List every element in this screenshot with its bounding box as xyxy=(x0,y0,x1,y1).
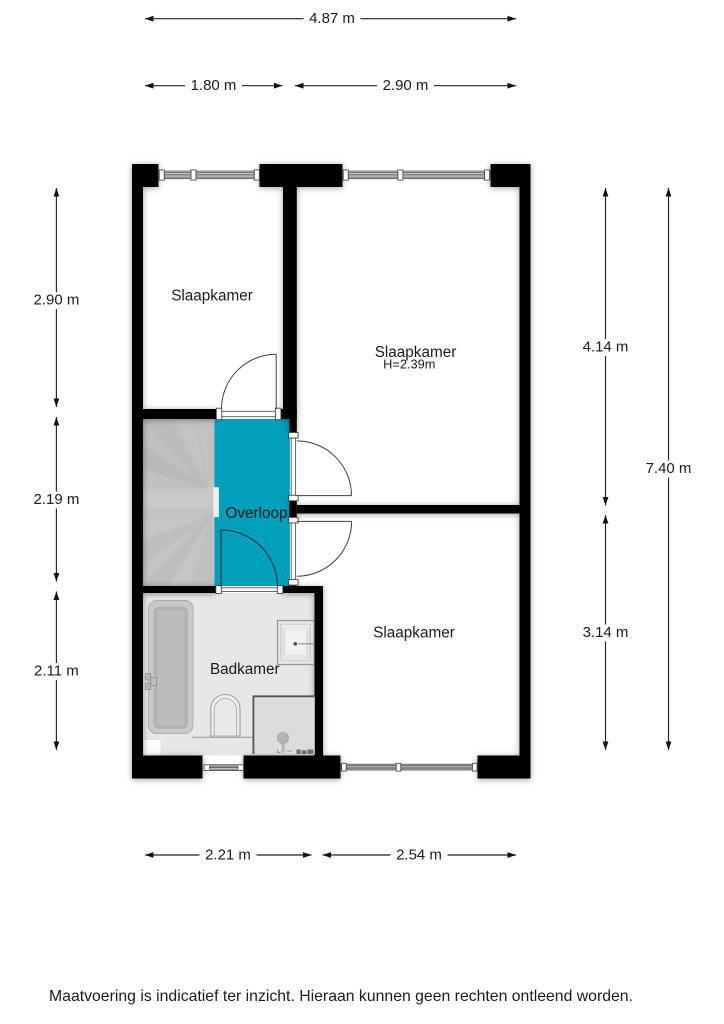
svg-text:Slaapkamer: Slaapkamer xyxy=(373,625,455,642)
svg-text:Slaapkamer: Slaapkamer xyxy=(171,288,253,305)
svg-text:4.87 m: 4.87 m xyxy=(309,10,355,27)
svg-text:2.54 m: 2.54 m xyxy=(396,847,442,864)
svg-text:H=2.39m: H=2.39m xyxy=(383,356,435,371)
svg-text:1.80 m: 1.80 m xyxy=(191,77,237,94)
svg-text:7.40 m: 7.40 m xyxy=(646,460,692,477)
svg-text:4.14 m: 4.14 m xyxy=(583,339,629,356)
svg-text:2.21 m: 2.21 m xyxy=(205,847,251,864)
svg-text:Overloop: Overloop xyxy=(225,505,287,522)
svg-text:2.11 m: 2.11 m xyxy=(34,663,79,680)
svg-text:Maatvoering is indicatief ter: Maatvoering is indicatief ter inzicht. H… xyxy=(49,988,633,1005)
svg-text:2.19 m: 2.19 m xyxy=(33,491,79,508)
svg-text:2.90 m: 2.90 m xyxy=(383,77,429,94)
svg-text:3.14 m: 3.14 m xyxy=(583,624,629,641)
svg-text:2.90 m: 2.90 m xyxy=(33,292,79,309)
svg-text:Badkamer: Badkamer xyxy=(210,661,280,678)
